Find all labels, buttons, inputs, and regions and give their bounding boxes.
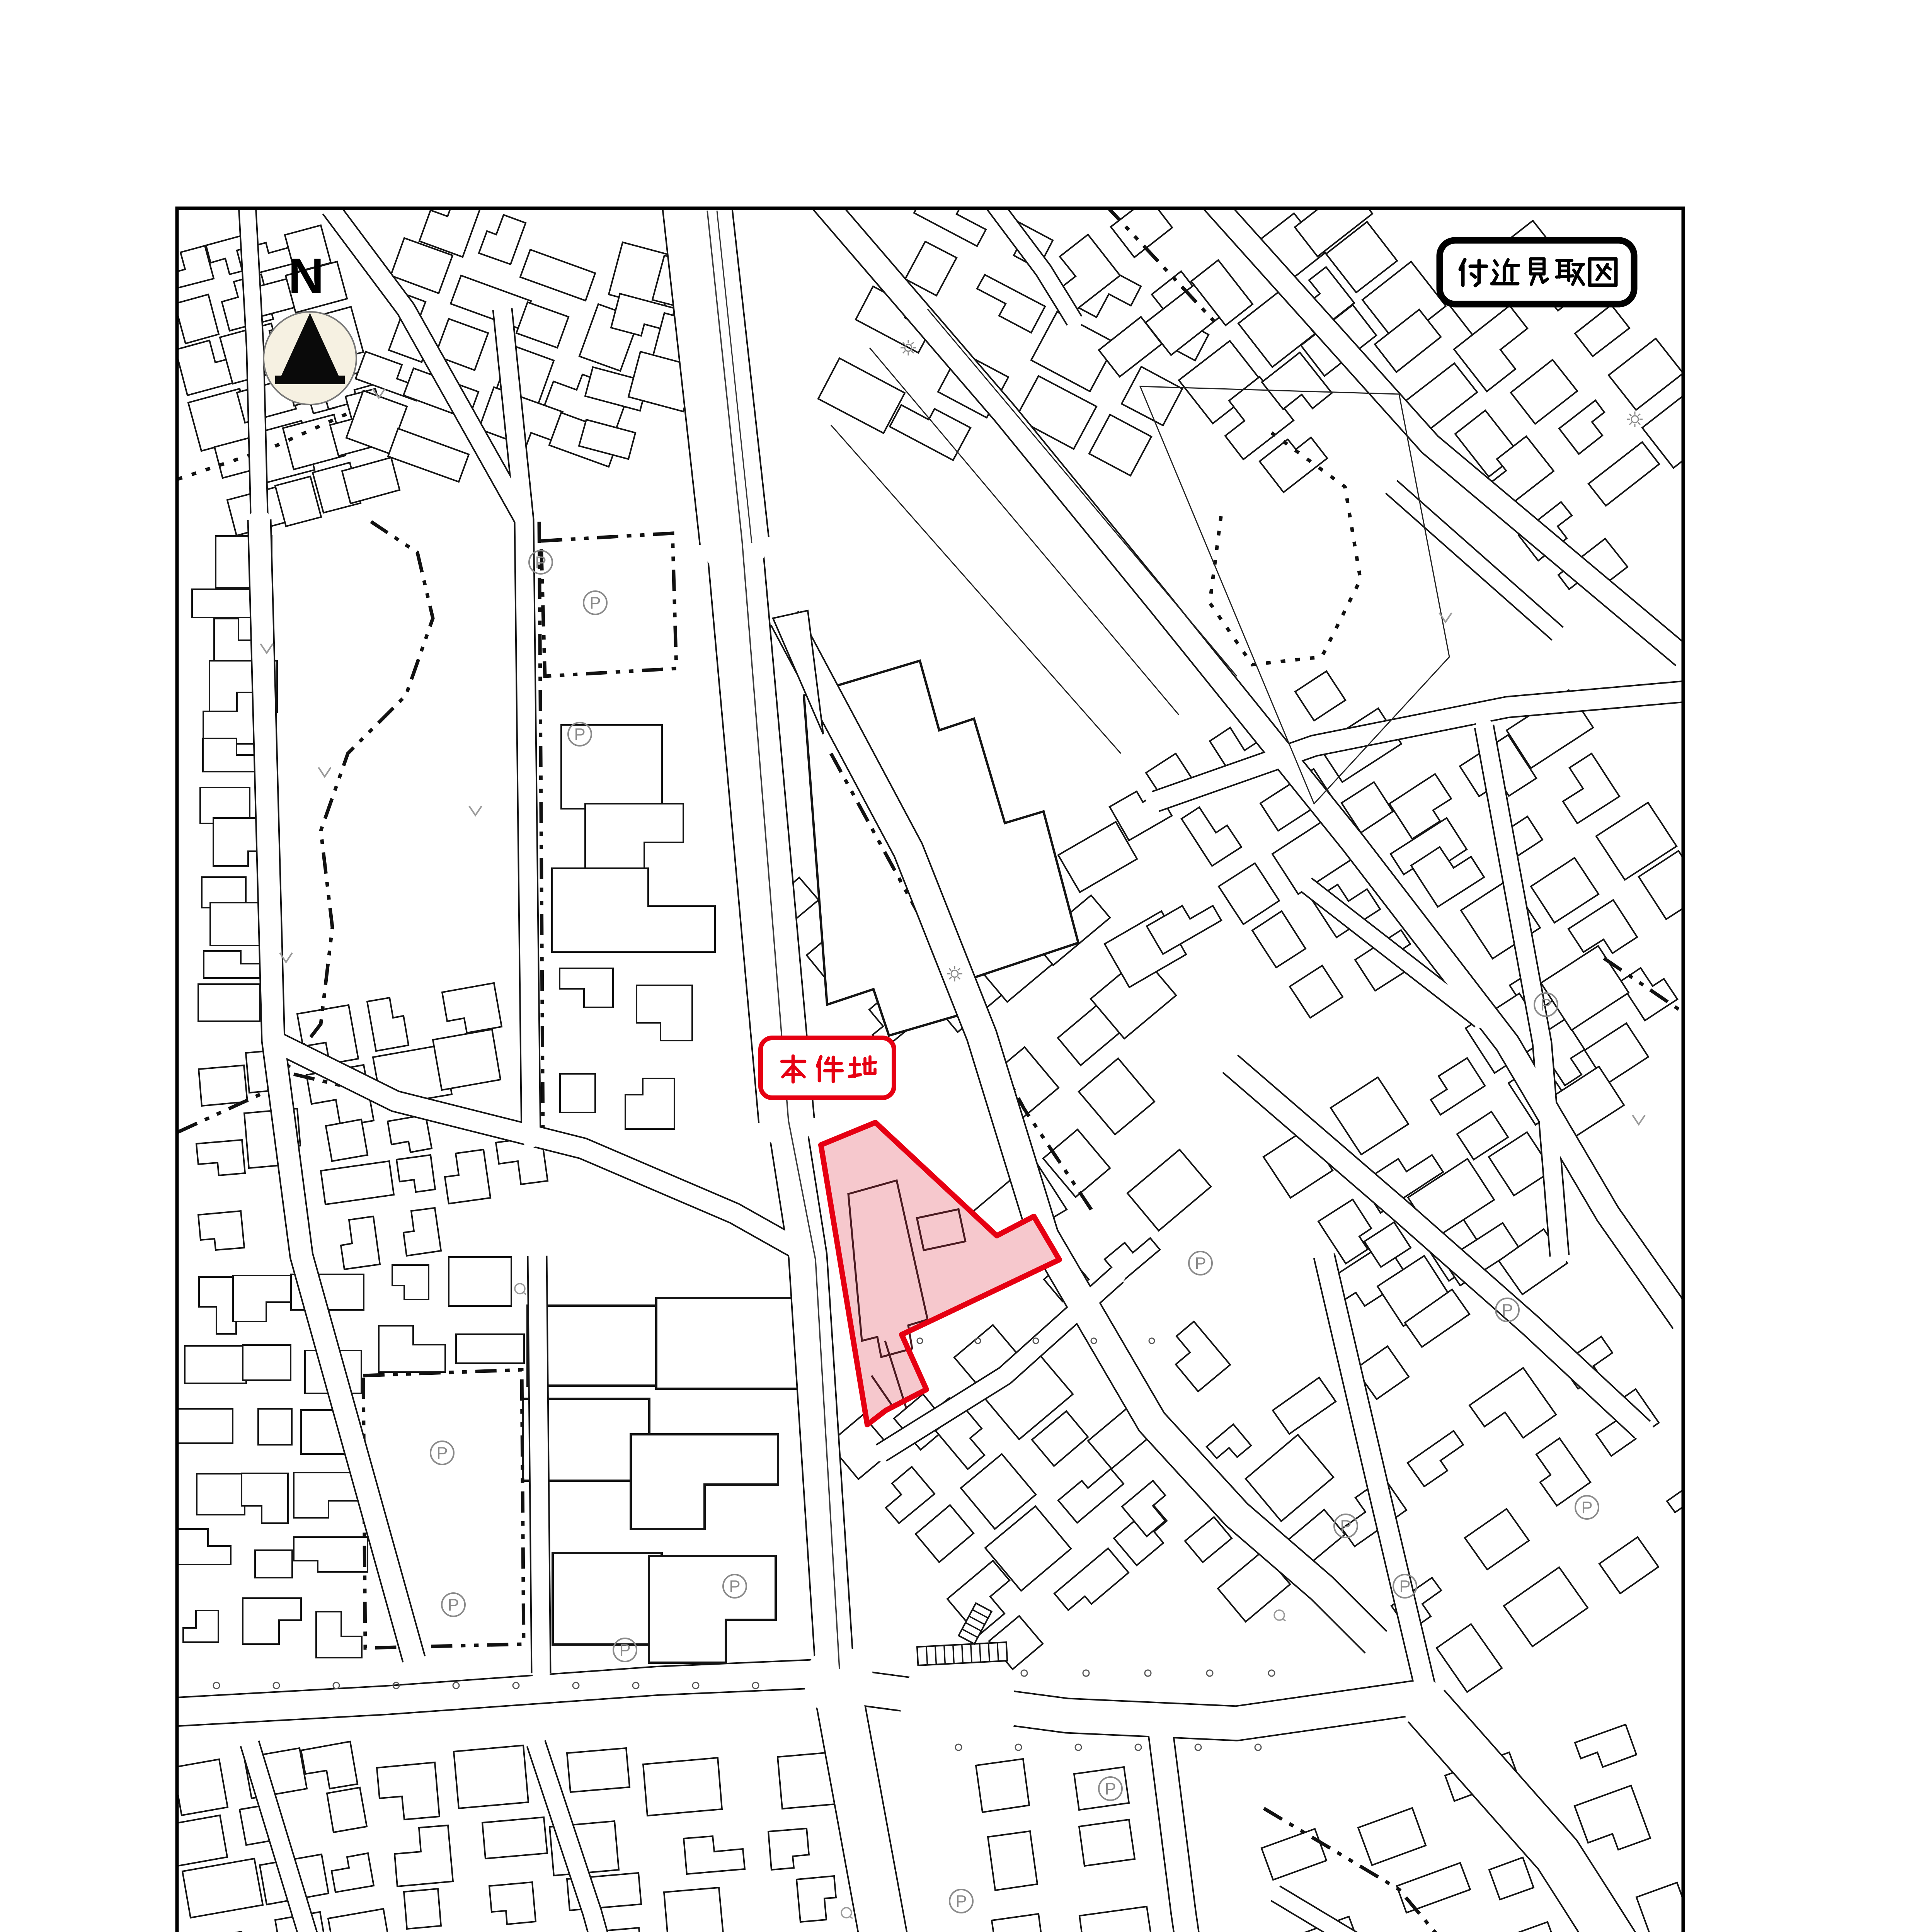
svg-text:P: P bbox=[729, 1577, 740, 1596]
svg-text:P: P bbox=[1540, 995, 1551, 1014]
svg-text:P: P bbox=[1399, 1577, 1410, 1596]
svg-text:P: P bbox=[1581, 1498, 1592, 1517]
svg-text:P: P bbox=[1195, 1254, 1206, 1273]
svg-text:P: P bbox=[1502, 1301, 1513, 1320]
svg-text:P: P bbox=[955, 1892, 967, 1911]
svg-text:P: P bbox=[436, 1444, 448, 1463]
svg-text:P: P bbox=[589, 594, 601, 612]
svg-text:P: P bbox=[535, 553, 546, 572]
svg-text:P: P bbox=[619, 1641, 630, 1660]
svg-text:N: N bbox=[288, 248, 324, 304]
svg-text:P: P bbox=[574, 725, 585, 744]
svg-text:P: P bbox=[1340, 1517, 1351, 1536]
svg-text:P: P bbox=[1105, 1779, 1116, 1798]
svg-text:P: P bbox=[448, 1595, 459, 1614]
